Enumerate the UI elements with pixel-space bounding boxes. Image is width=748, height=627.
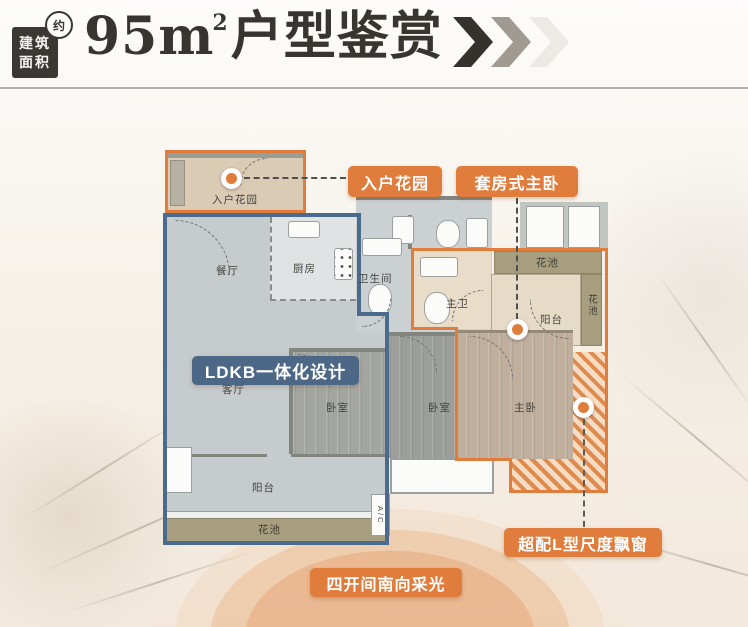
page-title: 95m2户型鉴赏 xyxy=(84,8,443,65)
title-number: 95 xyxy=(84,6,158,67)
suite-border xyxy=(455,458,512,461)
title-superscript: 2 xyxy=(212,10,228,36)
bay-window-hatch-horizontal xyxy=(509,459,573,490)
callout-suite-master: 套房式主卧 xyxy=(456,166,578,197)
window-bay xyxy=(390,458,494,494)
master-bath-sink xyxy=(420,257,458,277)
suite-border xyxy=(509,458,512,493)
wall xyxy=(168,153,303,158)
chevron-icon xyxy=(453,17,493,67)
callout-south-light-label: 四开间南向采光 xyxy=(326,571,445,595)
bay-window-hatch-vertical xyxy=(573,352,605,490)
approx-circle: 约 xyxy=(45,11,73,39)
ldkb-border xyxy=(385,312,389,545)
suite-border xyxy=(605,248,608,493)
ldkb-border xyxy=(163,213,361,217)
basin xyxy=(466,218,488,248)
callout-bay-window: 超配L型尺度飘窗 xyxy=(504,528,662,557)
closet xyxy=(526,206,564,248)
callout-suite-master-label: 套房式主卧 xyxy=(474,170,559,194)
room-label-flower-bottom: 花池 xyxy=(258,522,281,537)
wall xyxy=(291,454,385,457)
approx-text: 约 xyxy=(53,17,65,34)
bath-sink xyxy=(362,238,402,256)
ldkb-border xyxy=(163,541,389,545)
window-bay xyxy=(166,447,192,493)
room-label-dining: 餐厅 xyxy=(216,263,239,278)
balcony-sill xyxy=(167,511,385,518)
poster: 建筑 面积 约 95m2户型鉴赏 入户花园 厨房 餐厅 客厅 卧室 阳台 花池 xyxy=(0,0,748,627)
callout-connector-entry xyxy=(244,177,346,179)
kitchen-divider xyxy=(270,299,356,301)
callout-ldkb: LDKB一体化设计 xyxy=(192,356,359,385)
room-label-suite-balcony: 阳台 xyxy=(540,312,563,327)
marble-shade xyxy=(600,120,748,460)
room-label-flower-right: 花池 xyxy=(584,294,598,317)
callout-ldkb-label: LDKB一体化设计 xyxy=(205,358,346,383)
area-badge-line2: 面积 xyxy=(19,53,51,71)
room-label-balcony: 阳台 xyxy=(252,480,275,495)
callout-entry-garden: 入户花园 xyxy=(348,166,442,197)
callout-entry-garden-label: 入户花园 xyxy=(361,170,429,194)
ldkb-border xyxy=(357,213,361,316)
callout-marker-bay xyxy=(573,397,594,418)
room-label-flower-top: 花池 xyxy=(536,255,559,270)
chevron-icon xyxy=(491,17,531,67)
title-unit: m xyxy=(158,6,214,67)
room-label-entry-garden: 入户花园 xyxy=(212,192,258,207)
room-label-bathroom: 卫生间 xyxy=(358,271,393,286)
callout-bay-window-label: 超配L型尺度飘窗 xyxy=(518,531,648,555)
callout-connector-suite xyxy=(516,198,518,319)
kitchen-sink xyxy=(288,221,320,238)
room-label-bedroom-a: 卧室 xyxy=(326,400,349,415)
callout-connector-bay xyxy=(583,419,585,537)
toilet xyxy=(436,220,460,248)
stove xyxy=(334,248,353,280)
suite-border xyxy=(411,248,605,251)
suite-border xyxy=(411,327,458,330)
room-label-kitchen: 厨房 xyxy=(293,261,316,276)
callout-marker-suite xyxy=(507,319,528,340)
room-label-master-bath: 主卫 xyxy=(446,296,469,311)
callout-south-light: 四开间南向采光 xyxy=(310,568,462,597)
room-label-master-bedroom: 主卧 xyxy=(514,400,537,415)
header-divider xyxy=(0,87,748,89)
room-label-bedroom-b: 卧室 xyxy=(428,400,451,415)
ac-unit-label: A/C xyxy=(376,506,385,525)
title-text: 户型鉴赏 xyxy=(231,6,443,67)
chevron-icon xyxy=(529,17,569,67)
suite-border xyxy=(455,327,458,461)
suite-border xyxy=(509,490,608,493)
area-badge-line1: 建筑 xyxy=(19,34,51,52)
ldkb-border xyxy=(163,213,167,545)
callout-marker-entry xyxy=(221,168,242,189)
closet xyxy=(170,160,185,206)
suite-border xyxy=(411,248,414,330)
closet xyxy=(568,206,600,248)
